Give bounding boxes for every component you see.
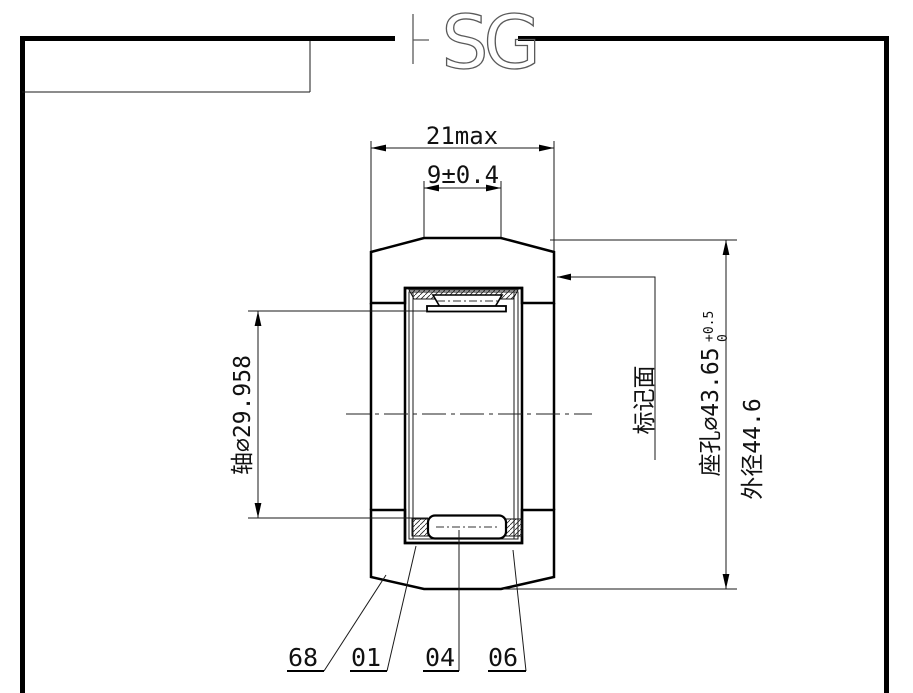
dim-total-width-text: 21max (426, 122, 498, 150)
cad-drawing-page: S G 21max 9 (0, 0, 913, 693)
title-block (22, 41, 310, 92)
dim-seat-tol-lower: 0 (716, 334, 731, 342)
border-right (884, 36, 889, 693)
top-inner-washer (427, 306, 506, 312)
part-label-06: 06 (488, 643, 518, 672)
arrow-left-icon (371, 145, 386, 152)
cup-outline (405, 288, 522, 543)
part-label-04: 04 (425, 643, 455, 672)
dim-shaft-text: 轴∅29.958 (230, 355, 256, 475)
dim-seat-tol-upper: +0.5 (702, 311, 717, 342)
marking-face-annotation: 标记面 (557, 274, 658, 460)
marking-face-text: 标记面 (632, 366, 658, 435)
border-left (20, 36, 25, 693)
dim-seat-hole-text: 座孔∅43.65 (698, 347, 724, 476)
watermark-fsg: S G (413, 0, 541, 86)
dim-total-width-extension-lines (371, 141, 554, 251)
arrow-right-icon (539, 145, 554, 152)
bearing-outer-ring (405, 288, 522, 543)
dim-bore-width: 9±0.4 (424, 161, 501, 237)
arrow-down-icon (255, 503, 262, 518)
arrow-up-icon (255, 311, 262, 326)
dim-outer-diameter-text: 外径44.6 (740, 398, 766, 499)
watermark-partial-f-icon (413, 14, 429, 64)
part-callouts: 68 01 04 06 (287, 530, 526, 672)
bearing-bottom-internals (412, 516, 522, 539)
cup-inner-line (409, 292, 518, 539)
border-top-left-segment (20, 36, 395, 41)
bottom-left-ring-hatch (412, 519, 428, 536)
seal-lines (413, 292, 514, 539)
leader-part-01 (387, 546, 416, 671)
drawing-canvas: S G 21max 9 (0, 0, 913, 693)
watermark-letter-g: G (483, 0, 540, 86)
arrow-down-icon (723, 574, 730, 589)
part-label-01: 01 (351, 643, 381, 672)
bearing-top-internals (409, 290, 518, 312)
arrow-left-icon (557, 274, 571, 281)
part-label-68: 68 (288, 643, 318, 672)
border-top-right-segment (518, 36, 889, 41)
watermark-letter-s: S (442, 0, 489, 86)
dim-bore-width-text: 9±0.4 (427, 161, 499, 189)
outer-silhouette-lines (371, 303, 554, 510)
bottom-right-ring-hatch (506, 519, 522, 536)
arrow-up-icon (723, 240, 730, 255)
